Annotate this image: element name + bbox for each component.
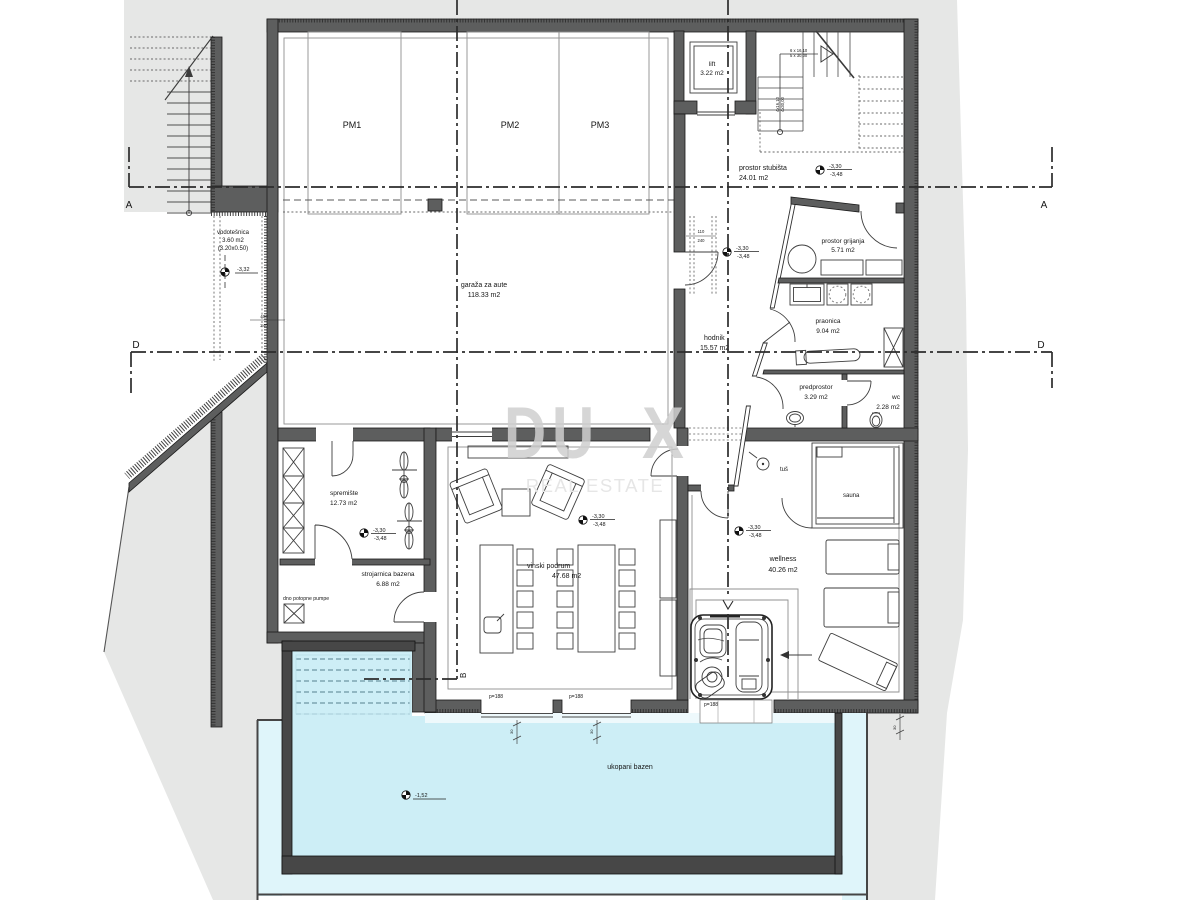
svg-text:D: D (504, 393, 546, 475)
svg-text:-3,48: -3,48 (737, 254, 750, 260)
svg-text:240: 240 (698, 238, 706, 243)
svg-text:-3,30: -3,30 (829, 164, 842, 170)
svg-text:-3,30: -3,30 (373, 528, 386, 534)
svg-text:15.57 m2: 15.57 m2 (700, 345, 729, 352)
svg-text:PM3: PM3 (591, 120, 610, 130)
svg-text:-3,48: -3,48 (593, 522, 606, 528)
svg-text:-3,30: -3,30 (748, 525, 761, 531)
svg-text:strojarnica bazena: strojarnica bazena (361, 571, 414, 578)
svg-text:PM2: PM2 (501, 120, 520, 130)
svg-text:vodotešnica: vodotešnica (217, 230, 250, 236)
svg-text:118.33 m2: 118.33 m2 (468, 292, 501, 299)
svg-text:12.73 m2: 12.73 m2 (330, 500, 357, 507)
svg-text:-3,48: -3,48 (374, 536, 387, 542)
svg-text:2.28 m2: 2.28 m2 (876, 404, 900, 411)
svg-text:-3,48: -3,48 (749, 533, 762, 539)
svg-text:240: 240 (260, 323, 268, 328)
svg-text:PM1: PM1 (343, 120, 362, 130)
svg-text:B: B (459, 673, 468, 678)
svg-text:-3,30: -3,30 (592, 514, 605, 520)
svg-text:prostor stubišta: prostor stubišta (739, 165, 787, 172)
svg-text:47.68 m2: 47.68 m2 (552, 573, 581, 580)
svg-text:400: 400 (260, 314, 268, 319)
svg-text:3.60 m2: 3.60 m2 (222, 238, 244, 244)
svg-text:ukopani bazen: ukopani bazen (607, 764, 653, 771)
svg-text:X: X (642, 393, 684, 474)
svg-text:garaža za aute: garaža za aute (461, 282, 507, 289)
svg-text:4x30,00: 4x30,00 (780, 96, 785, 112)
svg-text:wc: wc (891, 394, 901, 401)
svg-text:p=188: p=188 (489, 694, 503, 700)
svg-text:hodnik: hodnik (704, 335, 725, 342)
svg-text:tuš: tuš (780, 467, 788, 473)
svg-text:A: A (1041, 200, 1048, 211)
svg-text:p=188: p=188 (704, 702, 718, 708)
svg-text:3.22 m2: 3.22 m2 (700, 70, 724, 77)
svg-text:A: A (126, 200, 133, 211)
svg-text:wellness: wellness (769, 556, 797, 563)
svg-text:-3,32: -3,32 (237, 267, 250, 273)
svg-text:6.88 m2: 6.88 m2 (376, 581, 400, 588)
svg-text:110: 110 (698, 229, 705, 234)
svg-text:-3,48: -3,48 (830, 172, 843, 178)
svg-text:D: D (132, 340, 139, 351)
svg-text:p=188: p=188 (569, 694, 583, 700)
svg-text:5.71 m2: 5.71 m2 (831, 247, 855, 254)
svg-text:REAL ESTATE: REAL ESTATE (526, 475, 665, 496)
svg-text:24.01 m2: 24.01 m2 (739, 175, 768, 182)
svg-text:D: D (1037, 340, 1044, 351)
svg-text:30: 30 (509, 729, 514, 734)
svg-text:3.29 m2: 3.29 m2 (804, 394, 828, 401)
svg-text:vinski podrum: vinski podrum (527, 563, 570, 570)
svg-text:(3.20x0.50): (3.20x0.50) (218, 246, 248, 252)
svg-text:5 x 30,00: 5 x 30,00 (790, 53, 808, 58)
svg-text:prostor grijanja: prostor grijanja (822, 238, 865, 245)
svg-text:40.26 m2: 40.26 m2 (768, 567, 797, 574)
svg-text:predprostor: predprostor (799, 384, 833, 391)
svg-text:-1,52: -1,52 (415, 793, 428, 799)
svg-text:30: 30 (892, 725, 897, 730)
svg-text:lift: lift (709, 61, 716, 68)
svg-text:sauna: sauna (843, 493, 860, 499)
svg-text:dno potopne pumpe: dno potopne pumpe (283, 596, 329, 602)
svg-text:9.04 m2: 9.04 m2 (816, 328, 840, 335)
svg-text:30: 30 (589, 729, 594, 734)
svg-text:U: U (552, 393, 594, 475)
svg-text:spremište: spremište (330, 490, 359, 497)
svg-text:-3,30: -3,30 (736, 246, 749, 252)
svg-text:praonica: praonica (816, 318, 841, 325)
